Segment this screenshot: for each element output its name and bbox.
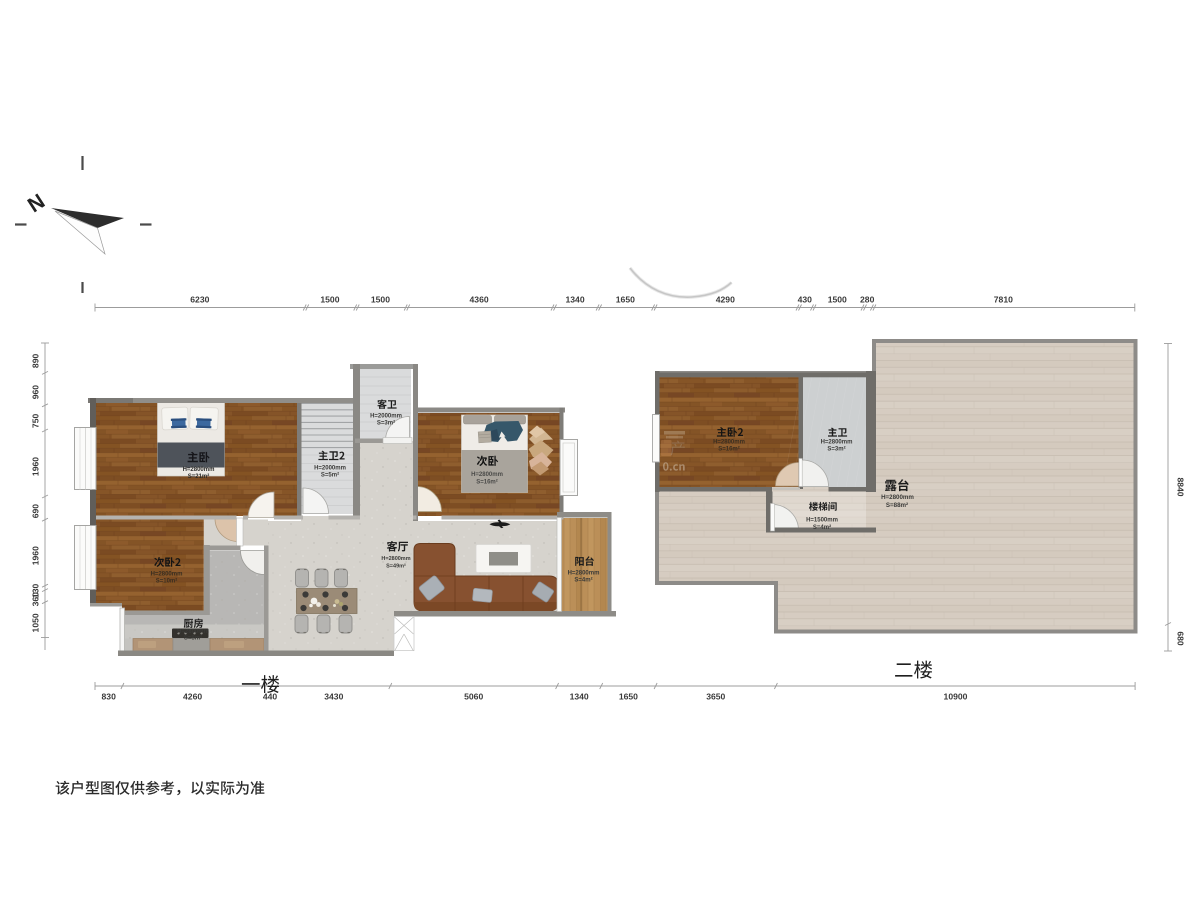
svg-text:H=2800mm: H=2800mm — [471, 472, 503, 478]
svg-text:S=3m²: S=3m² — [377, 420, 395, 427]
svg-text:S=4m²: S=4m² — [574, 577, 592, 584]
svg-text:S=16m²: S=16m² — [476, 479, 498, 486]
svg-text:1960: 1960 — [31, 457, 41, 476]
svg-text:690: 690 — [31, 504, 41, 519]
svg-text:680: 680 — [1176, 631, 1186, 646]
svg-text:H=2800mm: H=2800mm — [713, 440, 745, 446]
svg-text:1050: 1050 — [31, 613, 41, 632]
svg-text:4290: 4290 — [716, 295, 735, 305]
svg-text:S=5m²: S=5m² — [321, 472, 339, 479]
svg-text:3650: 3650 — [706, 692, 725, 702]
svg-text:830: 830 — [102, 692, 117, 702]
svg-text:4260: 4260 — [183, 692, 202, 702]
svg-text:1650: 1650 — [616, 295, 635, 305]
svg-text:280: 280 — [860, 295, 875, 305]
svg-text:H=2800mm: H=2800mm — [151, 572, 183, 578]
svg-text:H=2800mm: H=2800mm — [821, 440, 853, 446]
svg-text:H=2800mm: H=2800mm — [568, 571, 600, 577]
svg-text:5060: 5060 — [464, 692, 483, 702]
svg-text:1340: 1340 — [565, 295, 584, 305]
svg-text:S=21m²: S=21m² — [188, 473, 210, 480]
svg-text:H=2000mm: H=2000mm — [370, 414, 402, 420]
svg-text:S=8m²: S=8m² — [184, 635, 202, 642]
svg-text:1650: 1650 — [619, 692, 638, 702]
svg-text:1500: 1500 — [371, 295, 390, 305]
svg-text:8840: 8840 — [1176, 477, 1186, 496]
svg-text:10900: 10900 — [944, 692, 968, 702]
svg-text:1500: 1500 — [320, 295, 339, 305]
svg-text:H=2800mm: H=2800mm — [881, 494, 914, 501]
svg-text:3430: 3430 — [324, 692, 343, 702]
svg-text:S=4m²: S=4m² — [813, 524, 831, 531]
svg-text:6230: 6230 — [190, 295, 209, 305]
svg-text:H=1500mm: H=1500mm — [806, 518, 838, 524]
svg-text:H=2800mm: H=2800mm — [183, 467, 215, 473]
svg-text:960: 960 — [31, 385, 41, 400]
svg-text:1340: 1340 — [570, 692, 589, 702]
svg-text:890: 890 — [31, 354, 41, 369]
svg-text:4360: 4360 — [470, 295, 489, 305]
svg-text:H=2000mm: H=2000mm — [314, 466, 346, 472]
svg-text:H=2800mm: H=2800mm — [177, 629, 209, 635]
svg-text:S=16m²: S=16m² — [718, 446, 740, 453]
svg-text:1500: 1500 — [828, 295, 847, 305]
svg-text:S=49m²: S=49m² — [386, 563, 406, 570]
svg-text:S=88m²: S=88m² — [886, 502, 908, 509]
svg-text:H=2800mm: H=2800mm — [381, 556, 410, 562]
svg-text:750: 750 — [31, 414, 41, 429]
svg-text:S=10m²: S=10m² — [156, 578, 178, 585]
svg-text:7810: 7810 — [994, 295, 1013, 305]
svg-text:S=3m²: S=3m² — [827, 446, 845, 453]
svg-text:360: 360 — [31, 592, 41, 607]
svg-text:430: 430 — [798, 295, 813, 305]
svg-text:1960: 1960 — [31, 546, 41, 565]
